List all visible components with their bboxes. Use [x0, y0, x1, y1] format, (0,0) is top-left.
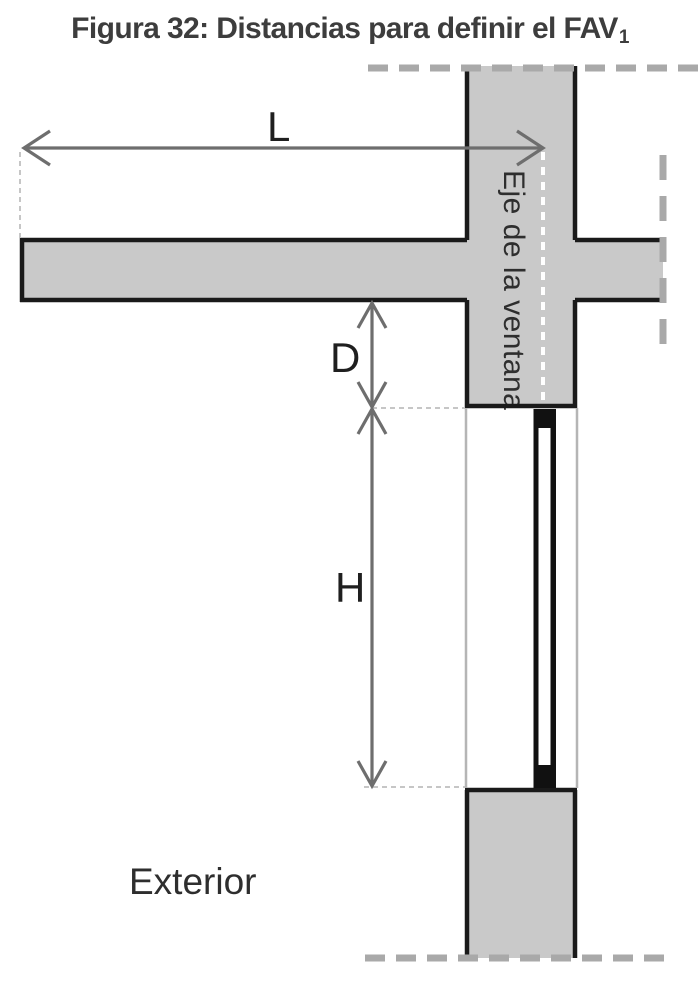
window-glass [539, 428, 551, 765]
window-section [534, 409, 557, 788]
window-axis-label: Eje de la ventana [497, 170, 530, 410]
structure-fills [20, 66, 663, 958]
right-wall-fill [575, 238, 663, 302]
fav-distance-diagram: Eje de la ventana [0, 0, 700, 983]
d-dimension-label: D [330, 334, 360, 381]
figure-page: Figura 32: Distancias para definir el FA… [0, 0, 700, 983]
exterior-label: Exterior [129, 861, 256, 902]
window-jamb-guides [466, 408, 577, 788]
left-wall-fill [20, 238, 467, 302]
l-dimension-label: L [267, 103, 290, 150]
bottom-wall-fill [465, 788, 577, 958]
h-dimension-label: H [335, 564, 365, 611]
